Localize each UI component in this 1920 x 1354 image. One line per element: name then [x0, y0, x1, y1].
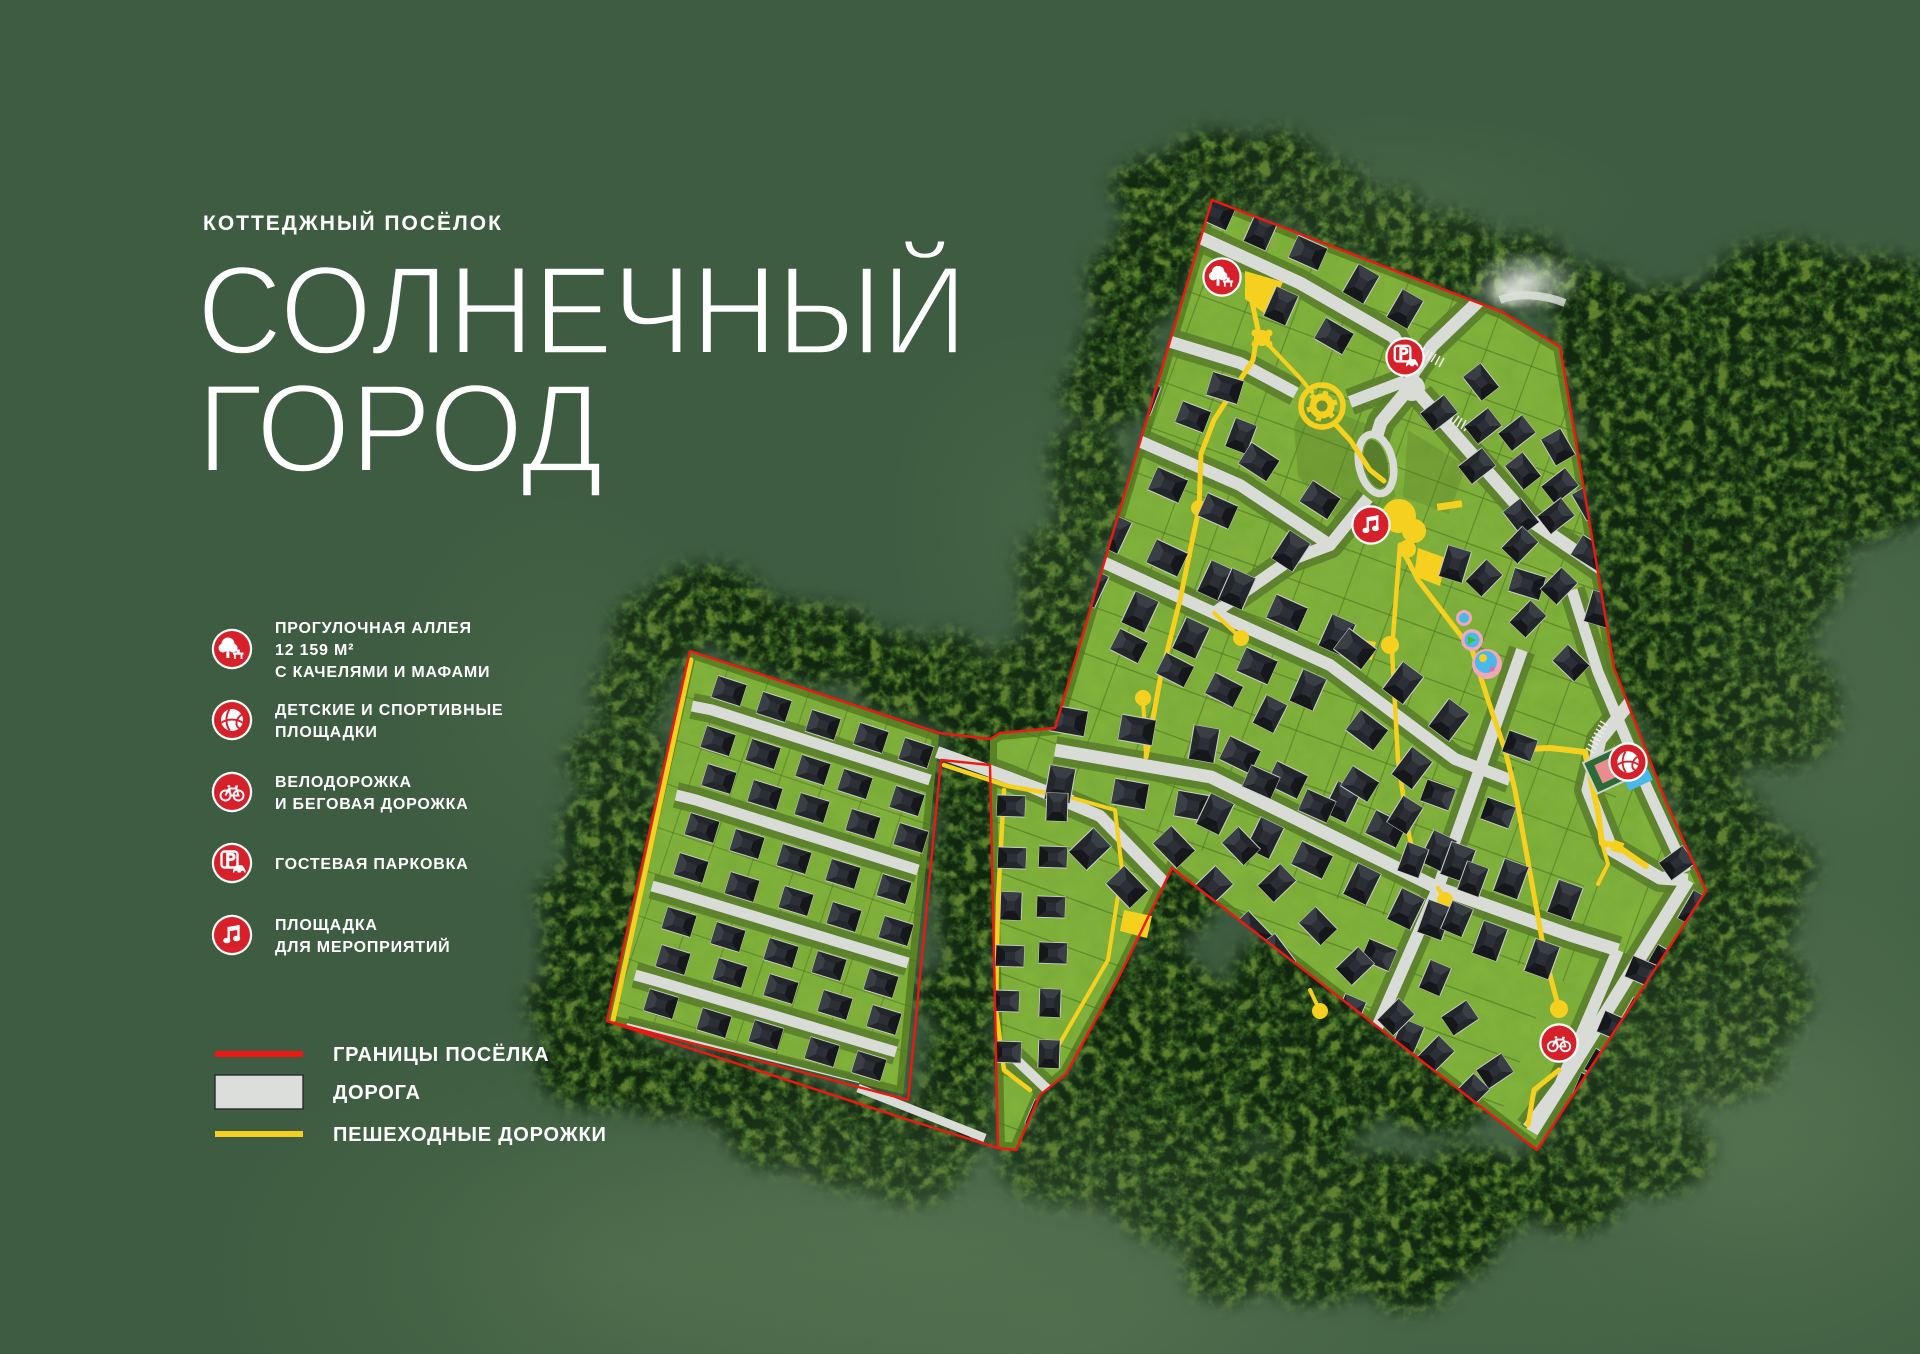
svg-text:ПРОГУЛОЧНАЯ АЛЛЕЯ: ПРОГУЛОЧНАЯ АЛЛЕЯ — [275, 620, 472, 637]
svg-text:ДОРОГА: ДОРОГА — [333, 1082, 421, 1104]
svg-text:ДЕТСКИЕ И СПОРТИВНЫЕ: ДЕТСКИЕ И СПОРТИВНЫЕ — [275, 702, 503, 719]
svg-text:ГРАНИЦЫ ПОСЁЛКА: ГРАНИЦЫ ПОСЁЛКА — [333, 1043, 549, 1066]
svg-text:ДЛЯ МЕРОПРИЯТИЙ: ДЛЯ МЕРОПРИЯТИЙ — [275, 937, 450, 956]
svg-text:С КАЧЕЛЯМИ И МАФАМИ: С КАЧЕЛЯМИ И МАФАМИ — [275, 664, 490, 681]
svg-text:ПЛОЩАДКА: ПЛОЩАДКА — [275, 917, 378, 934]
svg-text:12 159 М²: 12 159 М² — [275, 642, 354, 659]
svg-text:ГОРОД: ГОРОД — [197, 358, 603, 499]
svg-text:И БЕГОВАЯ ДОРОЖКА: И БЕГОВАЯ ДОРОЖКА — [275, 796, 469, 813]
svg-text:ГОСТЕВАЯ ПАРКОВКА: ГОСТЕВАЯ ПАРКОВКА — [275, 856, 469, 873]
svg-text:ВЕЛОДОРОЖКА: ВЕЛОДОРОЖКА — [275, 774, 412, 791]
svg-text:КОТТЕДЖНЫЙ ПОСЁЛОК: КОТТЕДЖНЫЙ ПОСЁЛОК — [203, 211, 503, 235]
svg-text:ПЕШЕХОДНЫЕ ДОРОЖКИ: ПЕШЕХОДНЫЕ ДОРОЖКИ — [333, 1124, 607, 1146]
svg-text:ПЛОЩАДКИ: ПЛОЩАДКИ — [275, 724, 378, 741]
